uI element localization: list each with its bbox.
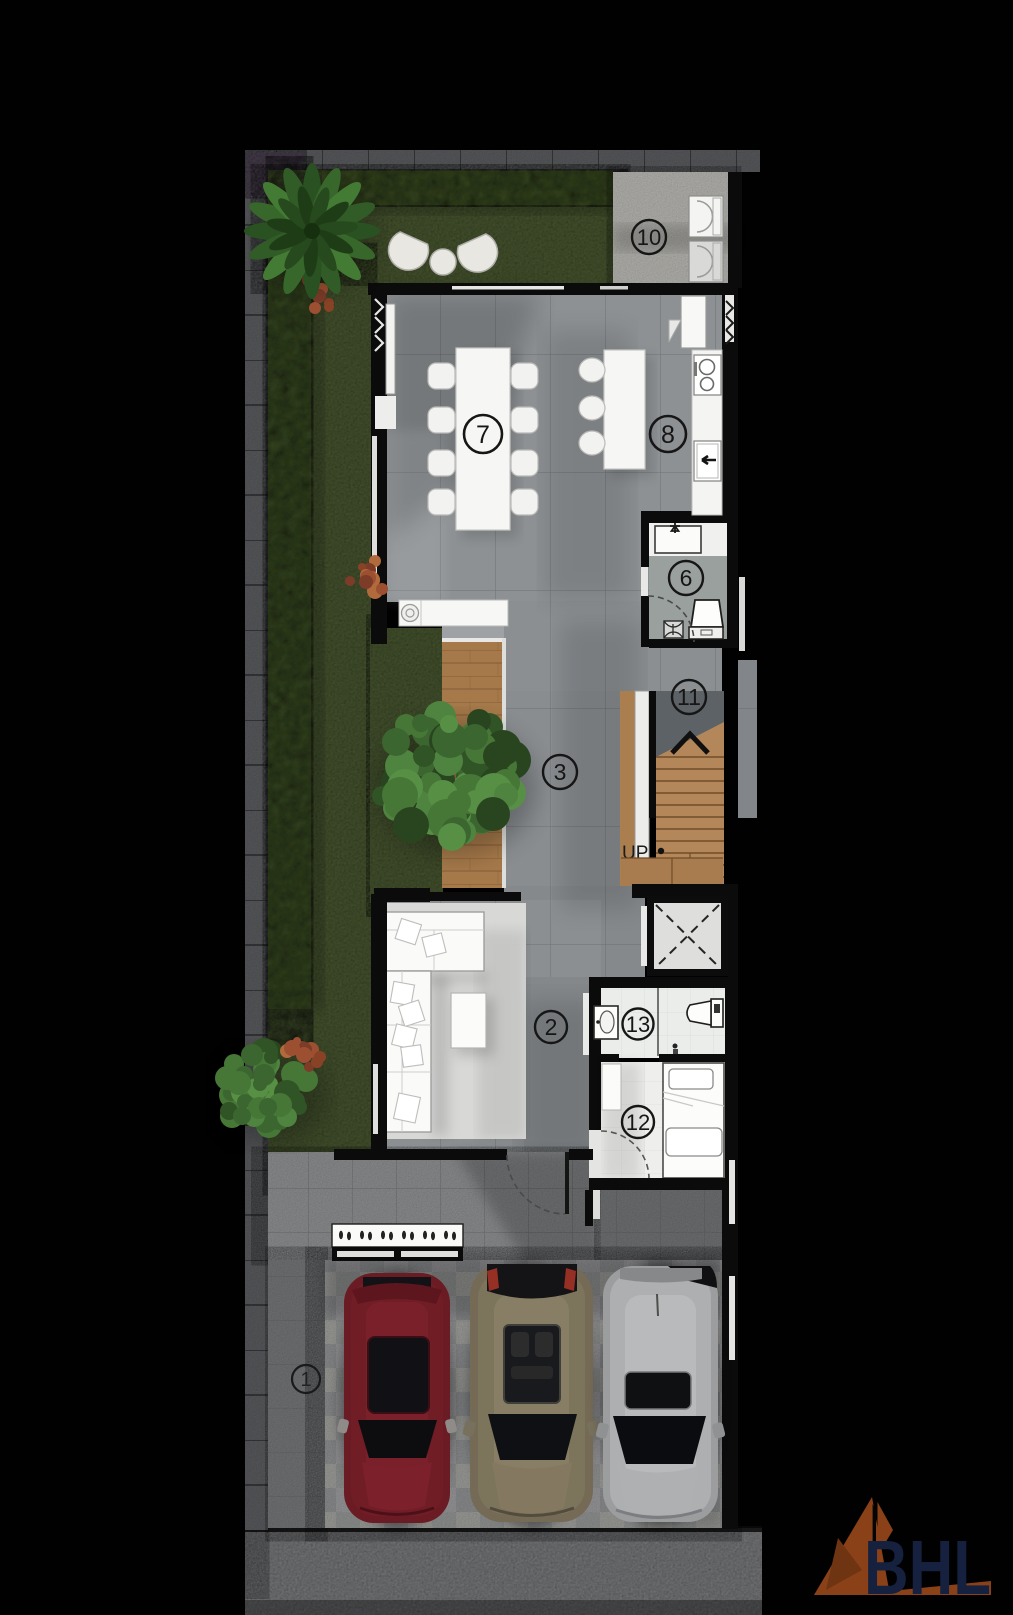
svg-text:2: 2: [545, 1014, 558, 1040]
svg-text:1: 1: [300, 1369, 311, 1391]
svg-text:3: 3: [554, 759, 567, 785]
svg-text:7: 7: [476, 421, 490, 449]
svg-text:BHL: BHL: [864, 1525, 991, 1611]
svg-text:13: 13: [626, 1012, 650, 1037]
svg-text:10: 10: [637, 225, 661, 250]
svg-text:8: 8: [661, 421, 675, 449]
svg-text:6: 6: [680, 565, 693, 591]
svg-text:11: 11: [677, 684, 701, 710]
svg-text:12: 12: [626, 1110, 650, 1135]
